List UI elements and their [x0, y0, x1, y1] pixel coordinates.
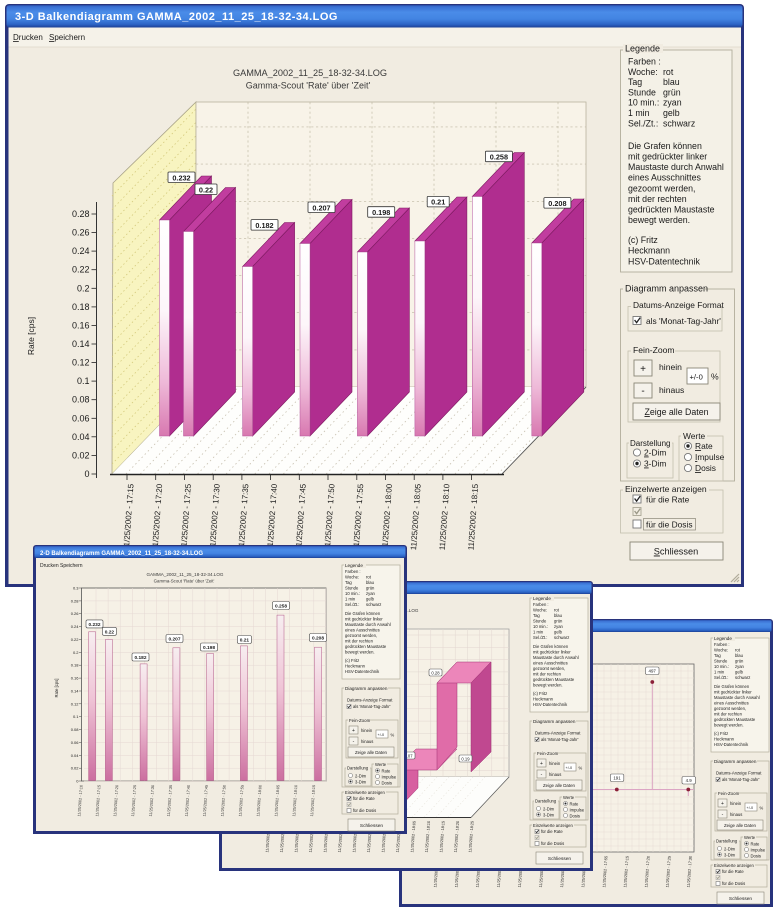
svg-text:0.182: 0.182 [134, 655, 146, 661]
svg-text:0.22: 0.22 [105, 629, 115, 635]
svg-text:0.28: 0.28 [71, 598, 80, 603]
svg-text:mit gedrückter linker: mit gedrückter linker [628, 152, 707, 162]
svg-text:0.1: 0.1 [77, 376, 90, 386]
svg-text:191: 191 [613, 776, 621, 781]
svg-text:0.14: 0.14 [71, 689, 80, 694]
svg-text:Speichern: Speichern [60, 563, 83, 569]
svg-text:rot: rot [663, 67, 674, 77]
svg-text:Fein-Zoom: Fein-Zoom [633, 345, 675, 355]
svg-text:eines Ausschnittes: eines Ausschnittes [628, 173, 701, 183]
svg-text:HSV-Datentechnik: HSV-Datentechnik [628, 256, 700, 266]
svg-text:0.258: 0.258 [275, 604, 287, 610]
svg-text:grün: grün [663, 87, 681, 97]
svg-text:0.2: 0.2 [77, 283, 90, 293]
svg-text:2-D Balkendiagramm GAMMA_2002_: 2-D Balkendiagramm GAMMA_2002_11_25_18-3… [40, 551, 203, 557]
svg-text:0.24: 0.24 [71, 624, 80, 629]
svg-text:Rate: Rate [695, 441, 713, 451]
svg-text:0.1: 0.1 [73, 714, 79, 719]
svg-text:0.258: 0.258 [490, 153, 508, 162]
svg-text:0.06: 0.06 [72, 413, 90, 423]
svg-text:0.21: 0.21 [431, 198, 445, 207]
svg-text:Woche:: Woche: [628, 67, 658, 77]
svg-text:schwarz: schwarz [663, 118, 695, 128]
svg-text:0.22: 0.22 [71, 637, 80, 642]
svg-text:Farben :: Farben : [628, 57, 661, 67]
svg-text:0.19: 0.19 [461, 756, 470, 761]
svg-text:0.22: 0.22 [199, 185, 213, 194]
svg-text:Gamma-Scout 'Rate' über 'Zeit': Gamma-Scout 'Rate' über 'Zeit' [154, 579, 215, 584]
svg-text:+: + [640, 364, 646, 375]
svg-text:0.14: 0.14 [72, 339, 90, 349]
svg-text:0.22: 0.22 [72, 265, 90, 275]
svg-text:Sel./Zt.:: Sel./Zt.: [628, 118, 658, 128]
svg-text:gelb: gelb [663, 108, 680, 118]
svg-text:0.232: 0.232 [172, 173, 190, 182]
svg-text:0.207: 0.207 [312, 203, 330, 212]
svg-text:Schliessen: Schliessen [654, 547, 698, 557]
svg-text:10 min.:: 10 min.: [628, 98, 659, 108]
svg-text:0.02: 0.02 [71, 766, 80, 771]
svg-text:0.02: 0.02 [72, 450, 90, 460]
svg-text:0.16: 0.16 [72, 320, 90, 330]
svg-text:GAMMA_2002_11_25_18-32-34.LOG: GAMMA_2002_11_25_18-32-34.LOG [233, 68, 387, 78]
svg-text:Drucken: Drucken [40, 563, 59, 569]
svg-text:blau: blau [663, 77, 680, 87]
svg-text:2-Dim: 2-Dim [644, 448, 666, 458]
svg-text:Impulse: Impulse [695, 452, 725, 462]
svg-text:0.21: 0.21 [240, 638, 250, 644]
svg-text:0.208: 0.208 [548, 199, 566, 208]
svg-text:%: % [711, 372, 719, 382]
svg-text:bewegt werden.: bewegt werden. [628, 215, 690, 225]
svg-text:Diagramm anpassen: Diagramm anpassen [625, 284, 708, 294]
svg-text:0.3: 0.3 [73, 586, 79, 591]
svg-text:Stunde: Stunde [628, 87, 656, 97]
svg-text:0.232: 0.232 [88, 622, 100, 628]
svg-text:0.207: 0.207 [168, 637, 180, 643]
svg-text:Drucken: Drucken [13, 33, 43, 42]
svg-text:0.198: 0.198 [372, 208, 390, 217]
svg-text:-: - [641, 386, 644, 397]
svg-text:Zeige alle Daten: Zeige alle Daten [644, 407, 708, 417]
svg-text:GAMMA_2002_11_25_18-32-34.LOG: GAMMA_2002_11_25_18-32-34.LOG [146, 572, 223, 577]
svg-text:0.28: 0.28 [431, 670, 440, 675]
svg-text:hinaus: hinaus [659, 385, 684, 395]
svg-text:0.28: 0.28 [72, 209, 90, 219]
svg-text:0.12: 0.12 [71, 701, 80, 706]
svg-text:für die Rate: für die Rate [646, 495, 690, 505]
svg-text:Werte: Werte [683, 431, 706, 441]
svg-text:Tag: Tag [628, 77, 642, 87]
svg-text:0.208: 0.208 [312, 636, 324, 642]
svg-text:Rate [cps]: Rate [cps] [54, 679, 59, 698]
svg-text:gedrückten Maustaste: gedrückten Maustaste [628, 205, 715, 215]
svg-text:1 min: 1 min [628, 108, 650, 118]
svg-text:(c) Fritz: (c) Fritz [628, 235, 658, 245]
svg-text:als 'Monat-Tag-Jahr': als 'Monat-Tag-Jahr' [646, 316, 721, 326]
svg-text:0.04: 0.04 [72, 432, 90, 442]
svg-text:0.198: 0.198 [203, 645, 215, 651]
svg-text:hinein: hinein [659, 362, 682, 372]
svg-text:0.26: 0.26 [72, 228, 90, 238]
svg-text:Dosis: Dosis [695, 463, 716, 473]
svg-text:0: 0 [84, 469, 89, 479]
svg-text:Heckmann: Heckmann [628, 245, 670, 255]
svg-text:0.182: 0.182 [255, 221, 273, 230]
svg-text:0.06: 0.06 [71, 740, 80, 745]
svg-text:Maustaste durch Anwahl: Maustaste durch Anwahl [628, 162, 724, 172]
svg-text:Gamma-Scout 'Rate' über 'Zeit': Gamma-Scout 'Rate' über 'Zeit' [246, 81, 371, 91]
svg-text:0.26: 0.26 [71, 611, 80, 616]
svg-text:Die Grafen können: Die Grafen können [628, 141, 702, 151]
svg-text:0.16: 0.16 [71, 676, 80, 681]
svg-text:4.9: 4.9 [686, 778, 693, 783]
svg-text:für die Dosis: für die Dosis [646, 520, 693, 530]
svg-text:0.04: 0.04 [71, 753, 80, 758]
svg-text:+/-0: +/-0 [690, 373, 703, 382]
svg-text:Speichern: Speichern [49, 33, 85, 42]
svg-text:3-Dim: 3-Dim [644, 459, 666, 469]
svg-text:0.08: 0.08 [71, 727, 80, 732]
svg-text:Legende: Legende [625, 44, 660, 54]
svg-text:0.2: 0.2 [73, 650, 79, 655]
svg-text:0.12: 0.12 [72, 358, 90, 368]
svg-text:mit der rechten: mit der rechten [628, 194, 687, 204]
svg-text:0.18: 0.18 [72, 302, 90, 312]
svg-text:Einzelwerte anzeigen: Einzelwerte anzeigen [625, 484, 707, 494]
svg-text:497: 497 [649, 669, 657, 674]
svg-text:3-D Balkendiagramm GAMMA_2002_: 3-D Balkendiagramm GAMMA_2002_11_25_18-3… [15, 11, 338, 23]
svg-text:Rate [cps]: Rate [cps] [26, 317, 36, 355]
svg-text:0.24: 0.24 [72, 246, 90, 256]
svg-text:0.18: 0.18 [71, 663, 80, 668]
svg-text:gezoomt werden,: gezoomt werden, [628, 183, 695, 193]
svg-text:zyan: zyan [663, 98, 682, 108]
svg-text:Datums-Anzeige Format: Datums-Anzeige Format [633, 300, 724, 310]
svg-text:0.08: 0.08 [72, 395, 90, 405]
